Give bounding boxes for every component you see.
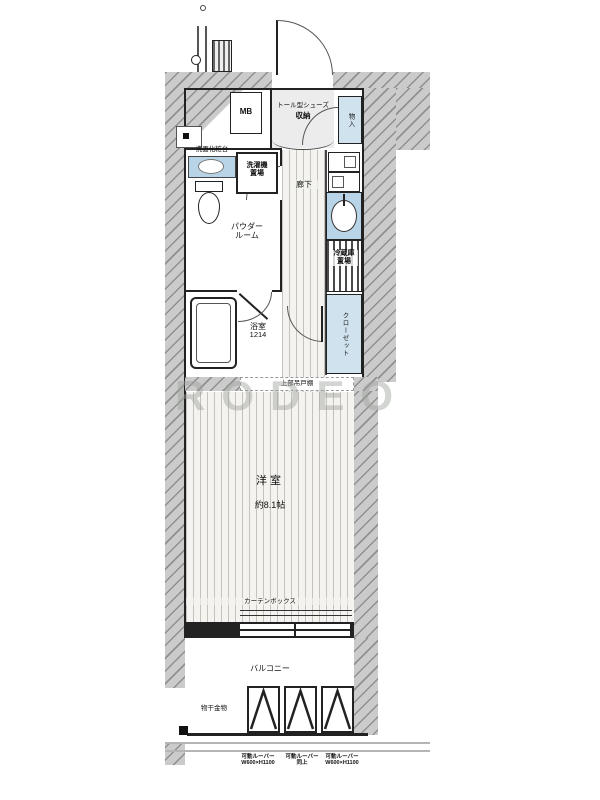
- unit-east-wall-upper: [362, 88, 364, 382]
- fridge-label: 冷蔵庫 置場: [330, 250, 358, 266]
- fridge-label-line1: 冷蔵庫: [330, 250, 358, 258]
- laundry-bracket-icon: [179, 726, 188, 735]
- powder-label-line1: パウダー: [224, 222, 270, 231]
- room-door-leaf: [321, 306, 323, 342]
- louver-spec-line2: 同上: [284, 760, 320, 766]
- washer-label-line2: 置場: [236, 170, 278, 178]
- wall-right-upper: [362, 88, 396, 382]
- watermark: RODEO: [175, 372, 475, 420]
- vent-circle-icon: [200, 5, 206, 11]
- exterior-edge-line: [165, 750, 430, 752]
- curtain-box-label: カーテンボックス: [186, 598, 354, 605]
- vanity-label: 洗面化粧台: [186, 146, 238, 153]
- floor-plan: トール型シューズ 収納 MB 物入 洗面化粧台 洗濯機 置場 パウダー ルーム …: [0, 0, 600, 800]
- fridge-label-line2: 置場: [330, 258, 358, 266]
- washer-label: 洗濯機 置場: [236, 162, 278, 178]
- louver-spec-label: 可動ルーバー W600×H1100: [236, 754, 280, 767]
- bath-label-line2: 1214: [240, 331, 276, 340]
- louver-spec-label: 可動ルーバー W600×H1100: [320, 754, 364, 767]
- closet-box: クローゼット: [326, 294, 362, 374]
- curtain-box-lines: [240, 610, 352, 616]
- pipe-line: [205, 26, 207, 72]
- bath-top-wall-left: [185, 290, 237, 292]
- louver-triangle-icon: [249, 688, 278, 731]
- faucet-icon: [343, 194, 345, 206]
- vanity-basin-icon: [198, 159, 224, 174]
- small-storage-box: 物入: [338, 96, 362, 144]
- wall-top-right: [333, 72, 430, 88]
- balcony-railing-line: [186, 733, 368, 736]
- louver-panel: [247, 686, 280, 733]
- louver-triangle-icon: [286, 688, 315, 731]
- louver-triangle-icon: [323, 688, 352, 731]
- laundry-bracket-label: 物干金物: [192, 705, 236, 712]
- balcony-label: バルコニー: [186, 664, 354, 673]
- louver-spec-line2: W600×H1100: [320, 760, 364, 766]
- louver-spec-line2: W600×H1100: [236, 760, 280, 766]
- room-size-label: 約8.1帖: [186, 500, 354, 510]
- exterior-edge-line: [165, 742, 430, 744]
- bath-label: 浴室 1214: [240, 322, 276, 340]
- sliding-window-center-tick: [294, 622, 296, 638]
- powder-room-label: パウダー ルーム: [224, 222, 270, 240]
- room-name-label: 洋室: [186, 475, 354, 488]
- wall-fixture-box: [176, 126, 202, 148]
- wall-fixture-dot: [183, 133, 189, 139]
- pipe-shaft-box: [212, 40, 232, 72]
- toilet-bowl-icon: [198, 192, 220, 224]
- entry-door-arc: [277, 20, 333, 75]
- powder-label-line2: ルーム: [224, 231, 270, 240]
- meter-box-label: MB: [230, 107, 262, 116]
- vent-circle-icon: [191, 55, 201, 65]
- bathtub-inner: [196, 303, 231, 363]
- room-south-wall-right: [350, 622, 354, 638]
- kitchen-cabinet-inner: [332, 176, 344, 188]
- wall-right-balcony: [354, 638, 378, 735]
- louver-panel: [321, 686, 354, 733]
- wall-top-right-block: [396, 88, 430, 150]
- pipe-line: [197, 26, 199, 72]
- bath-top-wall-right: [272, 290, 282, 292]
- small-storage-label: 物入: [345, 113, 355, 128]
- kitchen-cabinet-inner: [344, 156, 356, 168]
- louver-spec-label: 可動ルーバー 同上: [284, 754, 320, 767]
- washer-label-line1: 洗濯機: [236, 162, 278, 170]
- toilet-tank-icon: [195, 181, 223, 192]
- closet-label: クローゼット: [339, 312, 349, 357]
- hallway-label: 廊下: [290, 180, 318, 189]
- room-south-wall-left: [186, 622, 240, 638]
- louver-panel: [284, 686, 317, 733]
- wall-right-lower: [354, 382, 378, 638]
